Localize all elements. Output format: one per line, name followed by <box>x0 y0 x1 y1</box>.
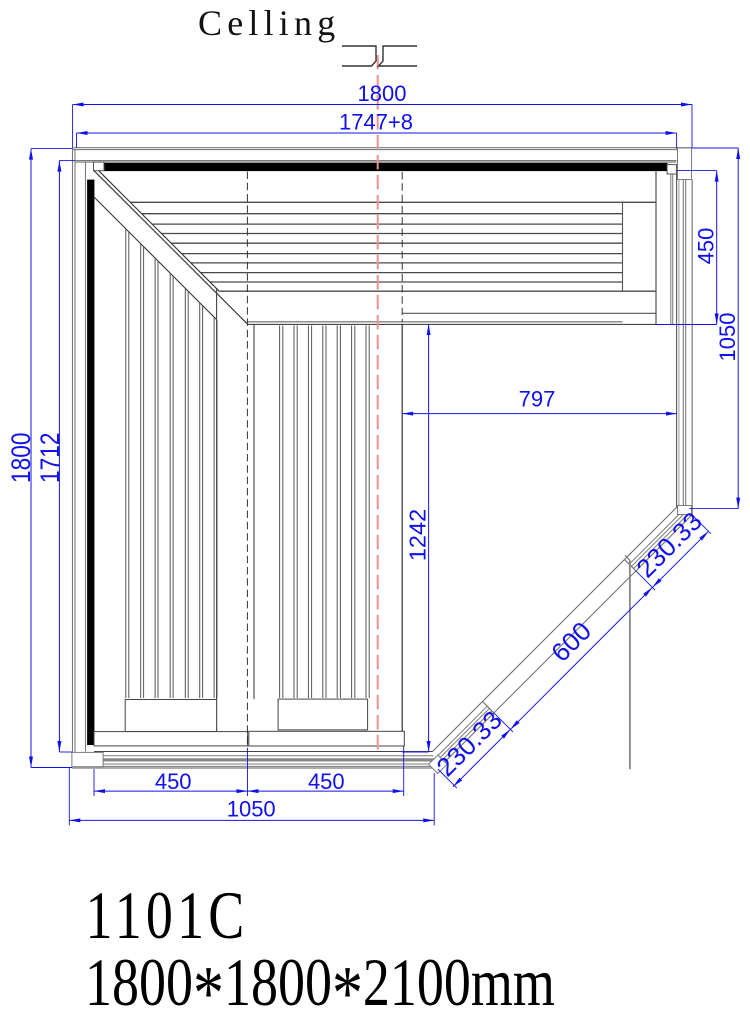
svg-text:1242: 1242 <box>405 509 431 561</box>
svg-text:1800: 1800 <box>358 81 407 106</box>
svg-text:450: 450 <box>694 228 719 265</box>
svg-text:1800: 1800 <box>6 433 36 483</box>
svg-text:1712: 1712 <box>35 433 65 483</box>
svg-text:Celling: Celling <box>198 3 340 43</box>
svg-text:1747+8: 1747+8 <box>339 110 413 135</box>
svg-text:450: 450 <box>308 769 345 794</box>
svg-text:1050: 1050 <box>715 313 740 362</box>
svg-text:1050: 1050 <box>227 797 276 822</box>
svg-text:450: 450 <box>155 769 192 794</box>
svg-text:1101C: 1101C <box>86 879 249 953</box>
svg-text:1800*1800*2100mm: 1800*1800*2100mm <box>85 946 555 1022</box>
svg-text:797: 797 <box>519 387 556 412</box>
